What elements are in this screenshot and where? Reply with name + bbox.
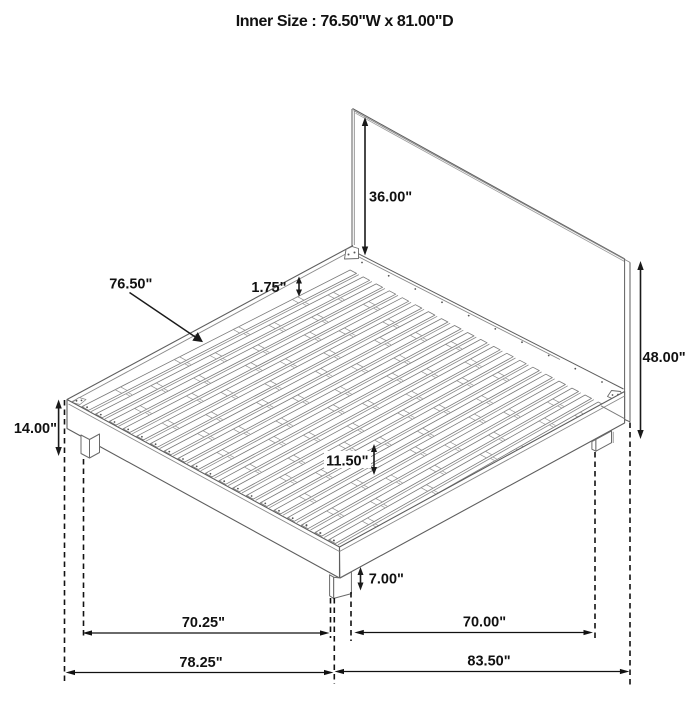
svg-text:70.00": 70.00" [463,615,506,631]
svg-text:83.50": 83.50" [467,653,510,669]
svg-text:70.25": 70.25" [182,615,225,631]
svg-text:14.00": 14.00" [14,421,57,437]
svg-text:Inner Size : 76.50"W x 81.00"D: Inner Size : 76.50"W x 81.00"D [236,13,454,30]
svg-text:1.75": 1.75" [251,280,286,296]
svg-text:76.50": 76.50" [109,277,152,293]
svg-text:36.00": 36.00" [369,190,412,206]
svg-text:7.00": 7.00" [369,571,404,587]
svg-text:11.50": 11.50" [326,454,368,470]
svg-text:78.25": 78.25" [179,655,222,671]
svg-text:48.00": 48.00" [643,350,686,366]
